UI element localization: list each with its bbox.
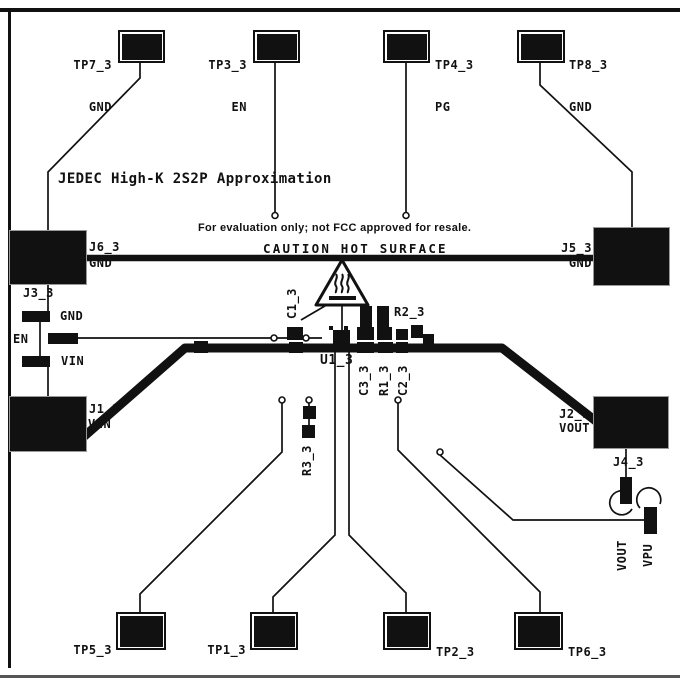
j3-gnd-label: GND bbox=[60, 309, 83, 323]
component-pad bbox=[360, 306, 372, 327]
c2-pad-2 bbox=[396, 342, 408, 353]
component-pad bbox=[289, 342, 303, 353]
j3-en-pin bbox=[48, 333, 78, 344]
via-en-tp3 bbox=[272, 213, 278, 219]
tp3-net: EN bbox=[200, 100, 247, 114]
u1-label: U1_3 bbox=[320, 353, 353, 368]
c3-label: C3_3 bbox=[357, 362, 371, 396]
j6-ref: J6_3 bbox=[89, 240, 120, 254]
r2-pad bbox=[411, 325, 423, 338]
tp3-ref: TP3_3 bbox=[200, 58, 247, 72]
j2-pad bbox=[594, 397, 668, 448]
j3-vin-pin bbox=[22, 356, 50, 367]
tp4-label: TP4_3 PG bbox=[435, 30, 474, 142]
tp3-label: TP3_3 EN bbox=[200, 30, 247, 142]
r1-label: R1_3 bbox=[377, 362, 391, 396]
via-en-2 bbox=[303, 335, 309, 341]
tp7-ref: TP7_3 bbox=[56, 58, 112, 72]
j5-net: GND bbox=[548, 256, 592, 270]
c2-pad bbox=[396, 329, 408, 340]
tp1-ref: TP1_3 bbox=[200, 643, 246, 657]
tp6-label: TP6_3 GND bbox=[568, 617, 607, 680]
via-r3 bbox=[306, 397, 312, 403]
j2-ref: J2_3 bbox=[544, 407, 590, 421]
j4-vout-pin bbox=[620, 477, 632, 504]
tp5-ref: TP5_3 bbox=[56, 643, 112, 657]
tp6-ref: TP6_3 bbox=[568, 645, 607, 659]
c1-label: C1_3 bbox=[285, 285, 299, 319]
c3-pad-2 bbox=[357, 342, 374, 353]
r2-pad-2 bbox=[423, 334, 434, 345]
j4-vpu-label: VPU bbox=[641, 533, 655, 567]
j3-ref: J3_3 bbox=[23, 286, 54, 300]
tp4-pad bbox=[383, 30, 430, 63]
tp1-label: TP1_3 VIN bbox=[200, 615, 246, 680]
tp2-label: TP2_3 VOUT bbox=[436, 617, 475, 680]
tp8-ref: TP8_3 bbox=[569, 58, 608, 72]
tp7-label: TP7_3 GND bbox=[56, 30, 112, 142]
via-tp6 bbox=[395, 397, 401, 403]
j3-gnd-pin bbox=[22, 311, 50, 322]
via-en-1 bbox=[271, 335, 277, 341]
component-pad bbox=[194, 341, 208, 353]
u1-body bbox=[333, 330, 350, 349]
via-tp5 bbox=[279, 397, 285, 403]
pcb-silkscreen-drawing: TP7_3 GND TP3_3 EN TP4_3 PG TP8_3 GND TP… bbox=[0, 0, 680, 680]
j6-pad bbox=[10, 231, 86, 284]
tp2-ref: TP2_3 bbox=[436, 645, 475, 659]
tp6-pad bbox=[514, 612, 563, 650]
caution-text: CAUTION HOT SURFACE bbox=[263, 241, 448, 256]
j1-net: VIN bbox=[88, 417, 111, 431]
tp8-label: TP8_3 GND bbox=[569, 30, 608, 142]
tp4-ref: TP4_3 bbox=[435, 58, 474, 72]
pin1-dot bbox=[329, 326, 333, 330]
hot-surface-warning-icon bbox=[316, 260, 368, 305]
line-tp5 bbox=[140, 403, 282, 613]
c1-pad bbox=[287, 327, 303, 340]
j4-arc-right bbox=[637, 488, 661, 508]
j5-ref: J5_3 bbox=[548, 241, 592, 255]
tp5-pad bbox=[116, 612, 166, 650]
tp8-pad bbox=[517, 30, 565, 63]
j1-ref: J1_3 bbox=[89, 402, 120, 416]
j5-pad bbox=[594, 228, 669, 285]
via-vpu bbox=[437, 449, 443, 455]
silkscreen-lines bbox=[40, 63, 661, 613]
board-title: JEDEC High-K 2S2P Approximation bbox=[58, 171, 332, 187]
tp8-net: GND bbox=[569, 100, 608, 114]
line-tp1 bbox=[273, 350, 335, 613]
r1-pad bbox=[377, 327, 392, 340]
tp4-net: PG bbox=[435, 100, 474, 114]
tp7-pad bbox=[118, 30, 165, 63]
line-tp6 bbox=[398, 403, 540, 613]
j2-net: VOUT bbox=[544, 421, 590, 435]
tp3-pad bbox=[253, 30, 300, 63]
c2-label: C2_3 bbox=[396, 362, 410, 396]
j6-net: GND bbox=[89, 256, 112, 270]
j4-vout-label: VOUT bbox=[615, 533, 629, 571]
j4-ref: J4_3 bbox=[613, 455, 644, 469]
j1-pad bbox=[10, 397, 86, 451]
tp5-label: TP5_3 GND bbox=[56, 615, 112, 680]
eval-notice: For evaluation only; not FCC approved fo… bbox=[198, 222, 471, 234]
tp1-pad bbox=[250, 612, 298, 650]
hot-surface-bar bbox=[329, 296, 356, 300]
j3-vin-label: VIN bbox=[61, 354, 84, 368]
r3-label: R3_3 bbox=[300, 436, 314, 476]
via-pg-tp4 bbox=[403, 213, 409, 219]
pin1-dot bbox=[344, 326, 348, 330]
j4-vpu-pin bbox=[644, 507, 657, 534]
r1-pad-2 bbox=[378, 342, 393, 353]
r3-pad bbox=[303, 406, 316, 419]
tp7-net: GND bbox=[56, 100, 112, 114]
r2-label: R2_3 bbox=[394, 305, 425, 319]
j3-en-label: EN bbox=[13, 332, 28, 346]
component-pad bbox=[377, 306, 389, 327]
c3-pad bbox=[357, 327, 374, 340]
tp2-pad bbox=[383, 612, 431, 650]
